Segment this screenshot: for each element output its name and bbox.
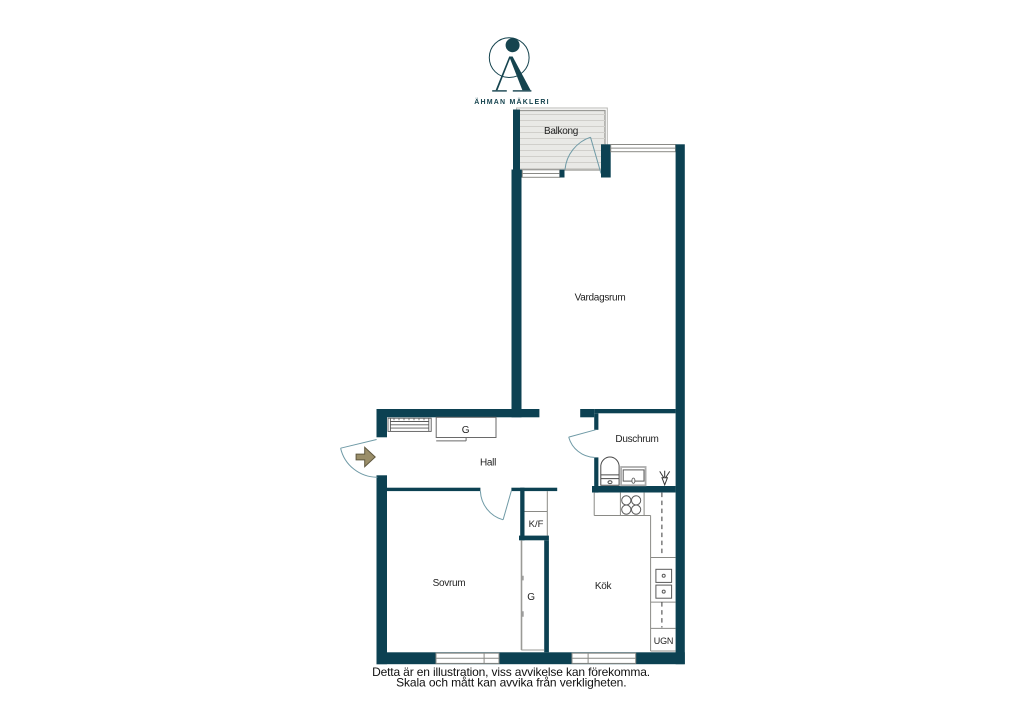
svg-text:Vardagsrum: Vardagsrum [575,293,626,304]
svg-text:Skala och mått kan avvika från: Skala och mått kan avvika från verklighe… [396,675,626,689]
svg-text:G: G [462,425,470,436]
svg-text:Sovrum: Sovrum [433,578,466,589]
svg-text:Duschrum: Duschrum [615,434,658,445]
svg-text:UGN: UGN [654,636,673,646]
svg-text:Balkong: Balkong [544,126,578,137]
svg-text:ÄHMAN MÄKLERI: ÄHMAN MÄKLERI [474,98,549,106]
svg-text:Kök: Kök [595,581,613,592]
svg-text:Hall: Hall [480,458,496,469]
svg-text:G: G [527,592,535,603]
svg-text:K/F: K/F [529,519,544,530]
